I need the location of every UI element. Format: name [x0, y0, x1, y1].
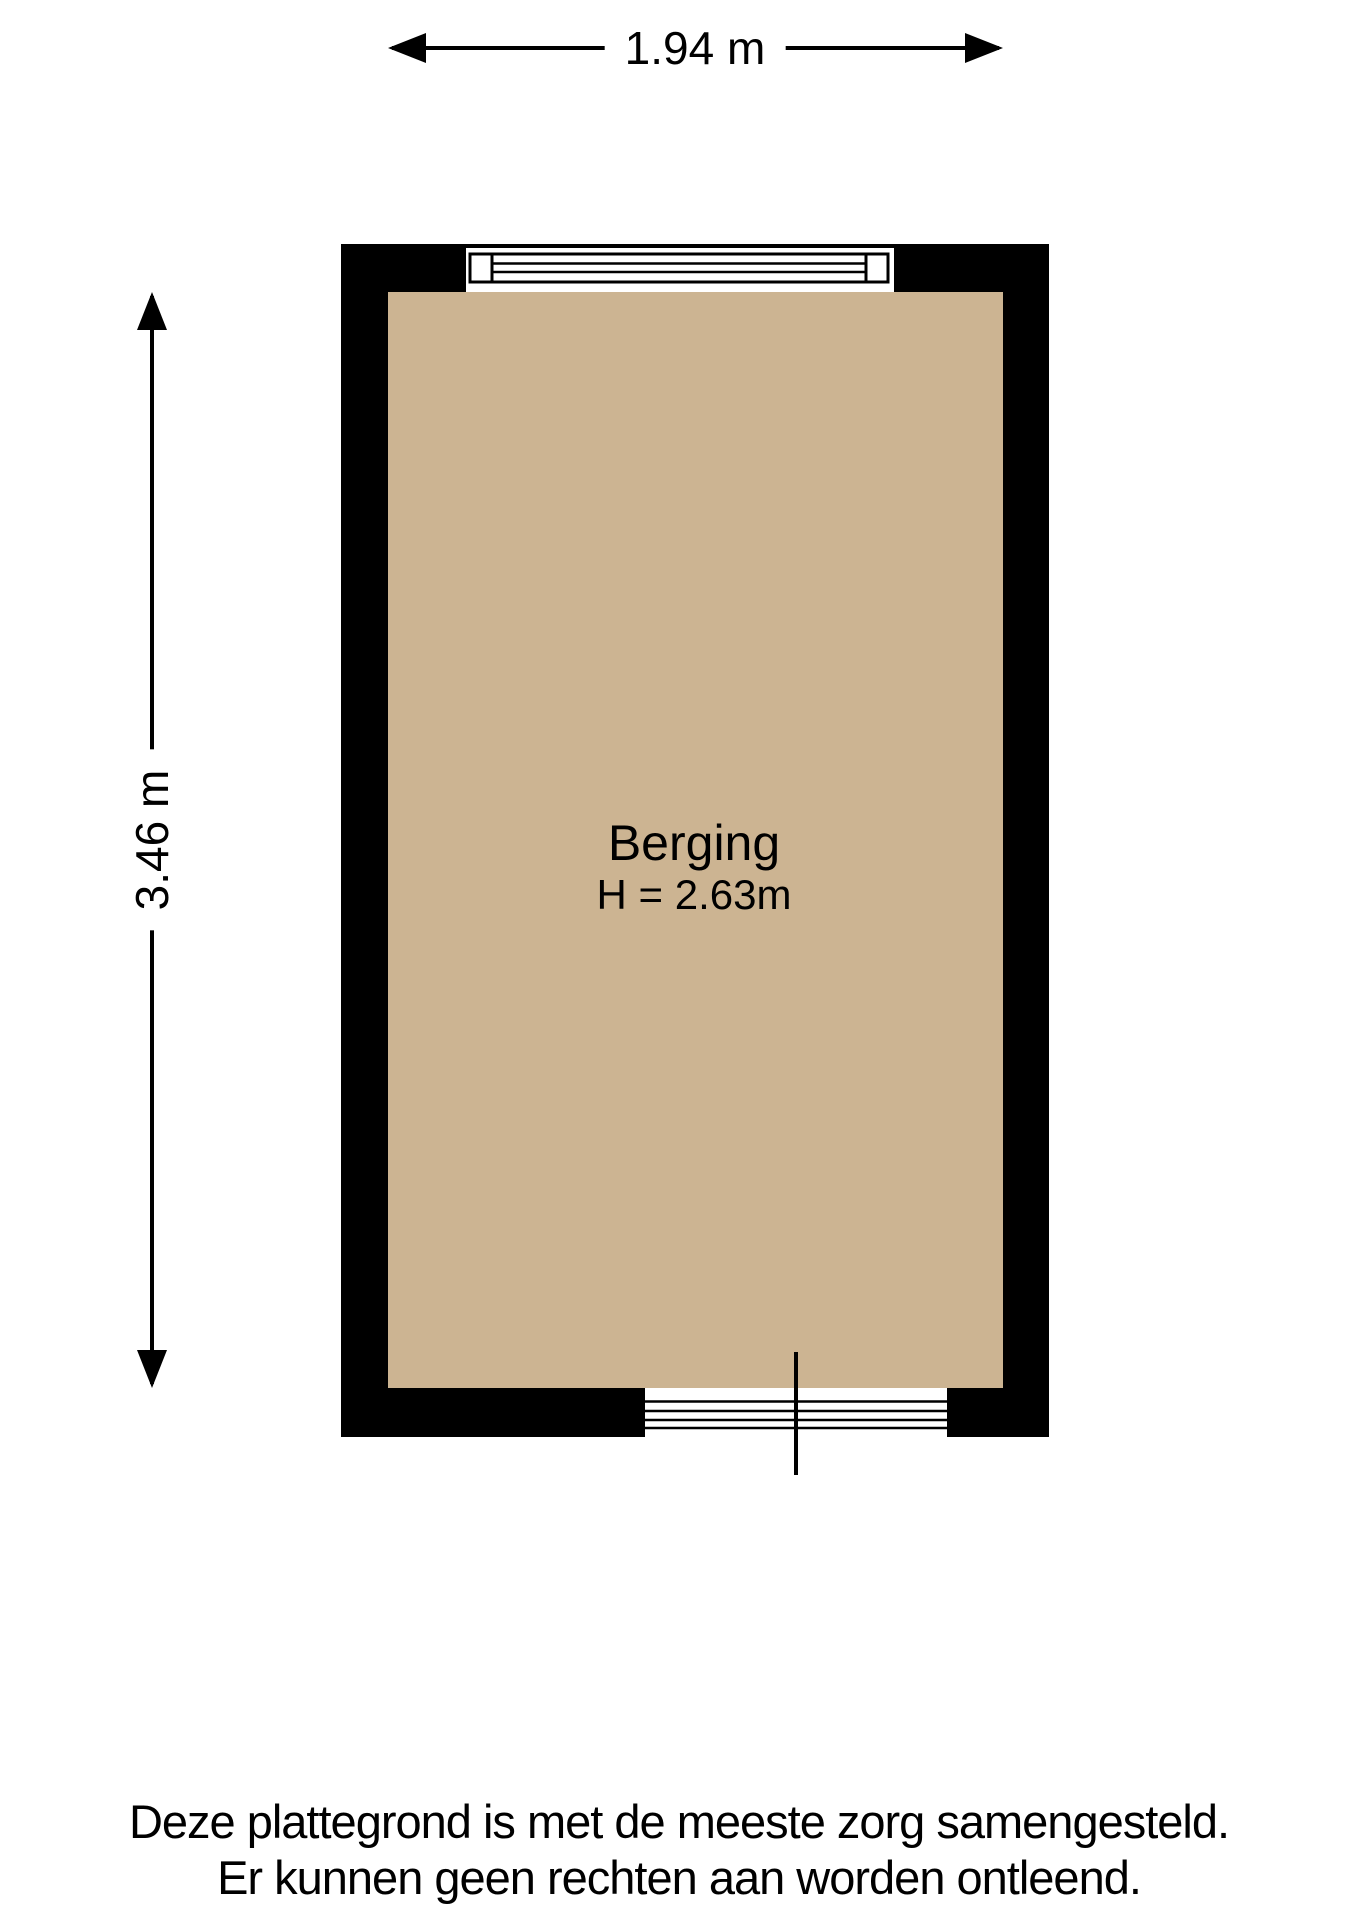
width-dimension-label: 1.94 m [605, 19, 786, 77]
window-frame [470, 254, 888, 282]
floorplan-page: 1.94 m 3.46 m Berging H = 2.63m Deze pla… [0, 0, 1358, 1920]
arrowhead-up-icon [137, 292, 167, 330]
floorplan-drawing [0, 0, 1358, 1920]
disclaimer-line-2: Er kunnen geen rechten aan worden ontlee… [0, 1850, 1358, 1906]
arrowhead-left-icon [388, 33, 426, 63]
arrowhead-down-icon [137, 1350, 167, 1388]
window-symbol [466, 244, 894, 292]
room-name-label: Berging [608, 818, 780, 868]
disclaimer: Deze plattegrond is met de meeste zorg s… [0, 1794, 1358, 1906]
room-ceiling-height-label: H = 2.63m [597, 874, 792, 916]
window-outer-face-line [466, 244, 894, 248]
height-dimension-label: 3.46 m [123, 750, 181, 931]
disclaimer-line-1: Deze plattegrond is met de meeste zorg s… [0, 1794, 1358, 1850]
arrowhead-right-icon [965, 33, 1003, 63]
